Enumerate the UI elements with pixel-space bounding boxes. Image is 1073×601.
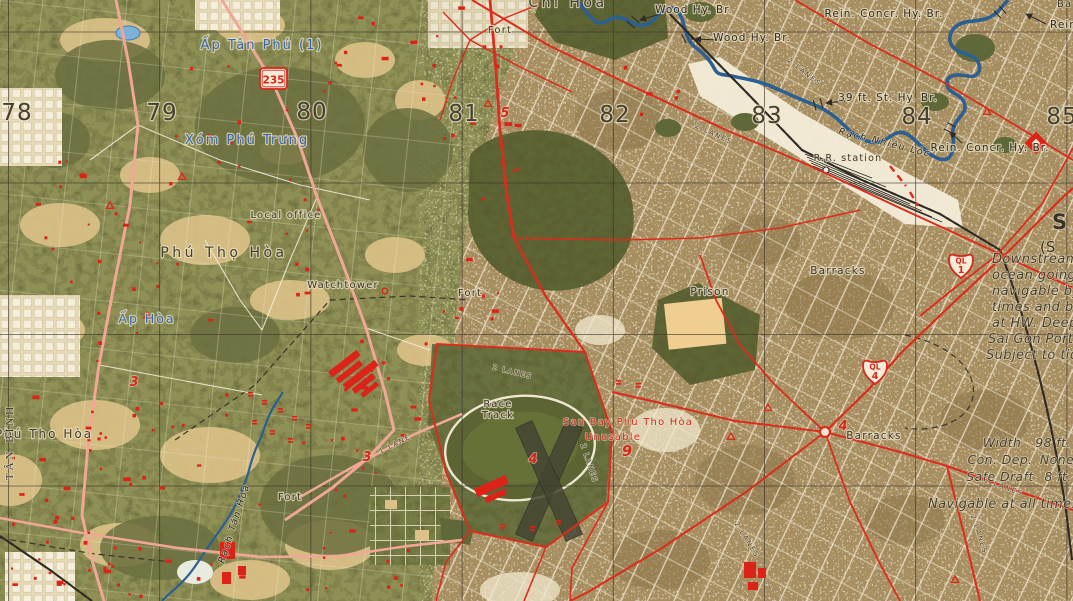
building-marker (19, 493, 24, 496)
place-chi-hoa: Chí Hòa (528, 0, 607, 11)
building-marker (225, 414, 228, 417)
building-marker (483, 45, 487, 49)
building-marker (513, 169, 516, 172)
building-marker (341, 437, 345, 441)
building-marker (98, 341, 102, 345)
building-marker (44, 236, 47, 239)
building-marker (295, 262, 298, 265)
building-bar (262, 400, 267, 402)
building-marker (481, 198, 485, 200)
grid-number-85: 85 (1046, 104, 1073, 130)
building-bar (270, 430, 275, 432)
building-marker (96, 360, 98, 362)
building-marker (108, 563, 111, 566)
building-marker (305, 292, 311, 295)
building-marker (210, 563, 212, 565)
anno-line-2: ocean going sh (992, 268, 1073, 283)
building-marker (325, 587, 327, 589)
building-marker (337, 64, 342, 67)
building-marker (36, 203, 41, 206)
building-marker (88, 224, 90, 226)
label-airfield-name: San Bay Phu Tho Hòa (563, 416, 693, 428)
route-marker-3a: 3 (129, 375, 138, 390)
building-marker (159, 487, 165, 490)
building-marker (123, 224, 129, 227)
anno-line-6: Sai Gon Port (988, 332, 1073, 347)
building-marker (11, 568, 13, 570)
building-marker (296, 293, 300, 297)
route-235-number: 235 (263, 75, 285, 87)
place-ba-partial: Ba (1057, 0, 1072, 10)
building-bar (278, 411, 283, 413)
label-airfield-status: Unusable (585, 432, 641, 443)
anno-line-5: at HW. Deepe (992, 316, 1073, 331)
place-ap-hoa: Ấp Hòa (118, 310, 175, 326)
building-marker (117, 584, 120, 587)
building-marker (111, 565, 114, 568)
building-bar (292, 419, 297, 421)
building-marker (171, 426, 174, 429)
building-marker (306, 589, 309, 592)
building-marker (515, 124, 522, 127)
building-marker (421, 83, 424, 86)
building-marker (157, 285, 160, 288)
building-marker (182, 424, 185, 427)
label-race: Race (483, 399, 512, 410)
building-marker (344, 51, 347, 54)
label-rr-station: R.R. station (814, 153, 883, 164)
building-marker (71, 517, 74, 520)
nav-condep-label: Con. Dep. (967, 452, 1032, 467)
building-marker (32, 396, 39, 400)
building-bar (530, 526, 535, 528)
building-marker (142, 476, 146, 480)
building-marker (39, 458, 46, 461)
terrain-layer (0, 0, 1073, 601)
anno-line-1: Downstream f (992, 252, 1073, 267)
building-bar (248, 395, 253, 397)
building-marker (190, 67, 193, 70)
building-marker (88, 532, 90, 534)
building-marker (38, 558, 40, 560)
building-marker (70, 281, 73, 284)
building-marker (64, 487, 71, 490)
building-marker (451, 134, 455, 138)
building-bar (306, 427, 311, 429)
building-marker (115, 212, 118, 215)
building-marker (84, 541, 88, 545)
place-saigon-partial: S (1052, 210, 1070, 234)
anno-line-7: Subject to tida (986, 348, 1073, 363)
building-marker (169, 182, 172, 185)
building-marker (411, 406, 417, 409)
building-marker (436, 35, 438, 37)
building-marker (58, 161, 61, 164)
topographic-pictomap[interactable]: 78 79 80 81 82 83 84 85 Chí Hòa Ấp Tân P… (0, 0, 1073, 601)
place-xom-phu-trung: Xóm Phú Trưng (185, 133, 309, 148)
route-marker-3b: 3 (362, 450, 371, 465)
building-marker (382, 57, 389, 61)
building-marker (237, 121, 241, 125)
label-39ft-bridge: 39 ft. St. Hy. Br. (838, 92, 938, 104)
building-marker (258, 504, 260, 506)
nav-draft-label: Safe Draft (966, 469, 1034, 484)
prison-yard (664, 298, 726, 350)
building-marker (302, 441, 305, 444)
label-track: Track (481, 410, 514, 421)
building-marker (343, 495, 346, 498)
place-ap-tan-phu: Ấp Tân Phú (1) (201, 36, 324, 53)
building-marker (286, 109, 289, 112)
grid-number-82: 82 (599, 102, 630, 128)
building-marker (331, 439, 333, 441)
route-235-shield: 235 (260, 68, 287, 89)
building-marker (54, 520, 58, 524)
building-marker (497, 292, 499, 294)
label-prison: Prison (690, 286, 729, 298)
anno-line-4: times and by (992, 300, 1073, 315)
building-marker (45, 499, 48, 502)
label-rein-concr-bridge-1: Rein. Concr. Hy. Br. (825, 8, 944, 20)
building-marker (517, 169, 520, 172)
hydro-annotation-block: Downstream f ocean going sh navigable by… (986, 252, 1073, 363)
building-marker (46, 541, 49, 544)
label-fort-1: Fort (488, 25, 512, 36)
nav-width-value: 98 ft. (1035, 435, 1071, 450)
building-bar (616, 383, 621, 385)
building-marker (238, 165, 240, 167)
building-bar (252, 423, 257, 425)
building-marker (91, 411, 94, 414)
building-marker (358, 16, 363, 19)
building-bar (248, 392, 253, 394)
building-marker (123, 477, 130, 481)
building-marker (136, 407, 140, 411)
building-marker (104, 570, 111, 574)
building-marker (52, 248, 55, 251)
building-marker (646, 92, 653, 95)
building-marker (305, 268, 309, 272)
building-marker (425, 342, 428, 345)
building-marker (414, 417, 421, 420)
building-bar (636, 383, 641, 385)
building-bar (500, 524, 505, 526)
building-bar (556, 520, 561, 522)
building-marker (139, 595, 142, 598)
building-marker (371, 22, 375, 26)
place-tan-binh: TÂN BÌNH (4, 404, 16, 480)
grid-number-80: 80 (296, 99, 327, 125)
route-ql1-number: 1 (958, 265, 965, 276)
label-fort-2: Fort (458, 288, 482, 299)
nav-width-label: Width (983, 435, 1022, 450)
grid-number-78: 78 (1, 100, 32, 126)
navigation-table: Width 98 ft. Con. Dep. None Safe Draft 8… (966, 435, 1073, 484)
route-marker-9: 9 (622, 442, 632, 460)
building-marker (500, 45, 503, 48)
building-marker (328, 81, 331, 84)
pond (116, 26, 140, 40)
building-marker (103, 567, 106, 570)
building-marker (356, 449, 358, 451)
building-marker (677, 90, 680, 93)
building-bar (288, 441, 293, 443)
building-marker (304, 198, 307, 201)
building-marker (57, 583, 62, 586)
building-bar (278, 408, 283, 410)
building-marker (458, 6, 465, 9)
building-marker (208, 319, 213, 321)
building-marker (323, 90, 325, 92)
building-marker (306, 229, 308, 231)
building-marker (387, 377, 390, 380)
building-bar (500, 527, 505, 529)
building-marker (133, 414, 137, 418)
building-marker (335, 489, 338, 492)
anno-navigable: Navigable at all times by L (928, 497, 1073, 512)
building-marker (129, 483, 132, 486)
building-marker (218, 161, 221, 164)
building-marker (505, 122, 513, 126)
building-marker (351, 408, 357, 411)
building-marker (375, 472, 377, 474)
building-bar (262, 403, 267, 405)
building-marker (55, 516, 59, 520)
route-ql4-number: 4 (872, 371, 879, 382)
building-marker (34, 577, 37, 580)
label-wood-bridge-2: Wood Hy. Br. (713, 32, 791, 44)
building-marker (98, 260, 101, 263)
building-bar (252, 420, 257, 422)
label-rein-partial: Rein (1050, 19, 1073, 31)
building-marker (63, 583, 65, 585)
building-marker (422, 97, 426, 101)
roundabout (820, 427, 830, 437)
grid-number-83: 83 (751, 103, 782, 129)
building-marker (152, 429, 155, 432)
building-marker (225, 393, 228, 396)
building-marker (640, 113, 643, 116)
building-marker (227, 65, 229, 67)
building-marker (114, 546, 117, 549)
nav-draft-value: 8 ft. (1044, 469, 1071, 484)
building-bar (556, 523, 561, 525)
building-marker (394, 576, 398, 580)
label-watchtower: Watchtower (307, 280, 379, 291)
building-marker (139, 242, 141, 244)
building-marker (239, 575, 245, 578)
building-marker (675, 96, 678, 99)
place-phu-tho-hoa-upper: Phú Thọ Hòa (160, 245, 287, 261)
building-marker (432, 64, 436, 68)
building-marker (466, 258, 473, 261)
building-marker (66, 160, 68, 162)
anno-line-3: navigable by l (992, 284, 1073, 299)
building-marker (496, 65, 500, 69)
nav-condep-value: None (1040, 452, 1073, 467)
building-marker (160, 402, 163, 405)
building-marker (443, 137, 446, 140)
building-marker (323, 547, 326, 550)
building-marker (362, 467, 364, 469)
grid-number-84: 84 (901, 104, 932, 130)
building-marker (286, 233, 288, 235)
building-bar (616, 380, 621, 382)
building-marker (492, 309, 499, 313)
building-marker (455, 317, 459, 319)
building-marker (98, 437, 101, 440)
garden-block (370, 487, 450, 565)
building-marker (491, 317, 494, 320)
grid-number-81: 81 (448, 101, 479, 127)
building-marker (132, 287, 136, 291)
building-marker (100, 432, 103, 435)
building-marker (330, 532, 332, 534)
building-marker (443, 310, 445, 312)
label-wood-bridge-1: Wood Hy. Br. (655, 4, 733, 16)
building-marker (136, 332, 138, 334)
building-bar (530, 529, 535, 531)
building-marker (100, 468, 103, 471)
label-rein-concr-bridge-2: Rein. Concr. Hy. Br. (931, 142, 1050, 154)
building-marker (360, 340, 364, 344)
label-barracks-1: Barracks (810, 265, 865, 277)
building-marker (624, 66, 628, 70)
building-bar (636, 386, 641, 388)
route-marker-4a: 4 (527, 452, 537, 467)
building-marker (105, 436, 108, 439)
route-marker-5: 5 (500, 106, 509, 121)
building-marker (176, 263, 179, 266)
label-fort-3: Fort (278, 492, 302, 503)
label-local-office: Local office (250, 210, 321, 221)
building-marker (386, 560, 389, 563)
building-bar (306, 424, 311, 426)
building-marker (97, 312, 100, 315)
building-marker (128, 593, 130, 595)
building-marker (460, 307, 464, 311)
grid-number-79: 79 (146, 100, 177, 126)
building-marker (59, 185, 62, 188)
building-marker (80, 173, 86, 176)
building-marker (387, 585, 390, 588)
building-marker (89, 449, 92, 452)
building-marker (335, 62, 338, 65)
building-marker (197, 577, 201, 581)
building-marker (138, 547, 141, 550)
label-barracks-2: Barracks (846, 430, 901, 442)
building-marker (410, 41, 417, 45)
building-marker (482, 295, 485, 298)
building-marker (400, 584, 403, 587)
building-marker (165, 560, 171, 563)
building-marker (247, 221, 252, 224)
building-marker (175, 135, 178, 138)
building-marker (289, 178, 292, 181)
building-marker (12, 523, 15, 526)
building-marker (197, 464, 202, 466)
building-marker (12, 583, 18, 586)
building-bar (270, 433, 275, 435)
building-marker (454, 96, 456, 98)
building-marker (433, 85, 435, 87)
building-marker (88, 569, 91, 572)
building-marker (382, 361, 385, 364)
building-marker (49, 572, 52, 575)
building-marker (323, 557, 325, 559)
building-marker (156, 262, 158, 264)
building-marker (349, 529, 355, 532)
building-bar (288, 438, 293, 440)
building-marker (407, 549, 410, 552)
building-bar (292, 416, 297, 418)
route-marker-4b: 4 (837, 419, 847, 434)
